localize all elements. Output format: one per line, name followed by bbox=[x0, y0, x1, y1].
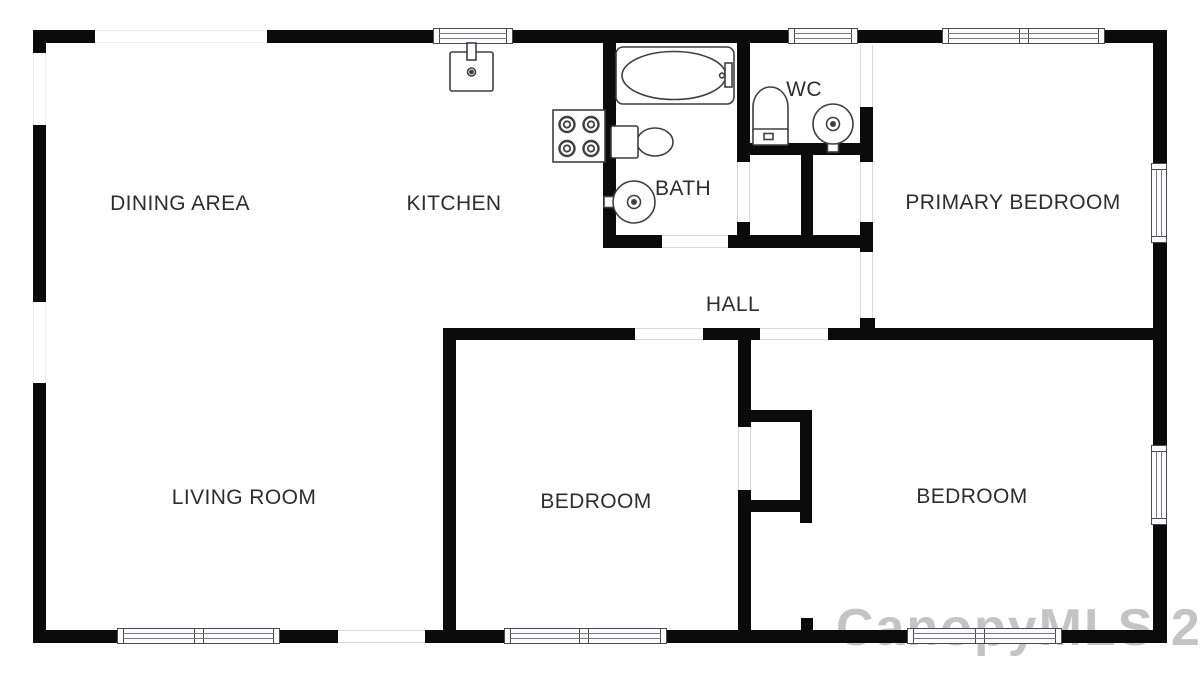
dining-window-opening bbox=[95, 30, 267, 43]
living-room-window bbox=[117, 628, 280, 644]
hall-closet-west-jamb bbox=[737, 222, 750, 248]
hall-closet-door-opening bbox=[737, 162, 750, 222]
room-label-dining-area-0: DINING AREA bbox=[110, 192, 250, 216]
floorplan-canvas: CanopyMLS 2023 DINING AREAKITCHENBATHWCP… bbox=[0, 0, 1200, 674]
closet-divider-wall bbox=[801, 155, 813, 248]
kitchen-window bbox=[433, 28, 513, 44]
living-room-entry-opening bbox=[338, 630, 425, 643]
hall-south-wall-mid bbox=[703, 328, 760, 340]
bath-door-opening bbox=[662, 235, 728, 248]
wc-toilet bbox=[753, 87, 788, 145]
room-label-kitchen-1: KITCHEN bbox=[407, 192, 502, 216]
room-label-bedroom-8: BEDROOM bbox=[916, 485, 1027, 509]
stove bbox=[553, 110, 605, 162]
room-label-living-room-6: LIVING ROOM bbox=[172, 486, 316, 510]
bedrooms-divider-north-wall bbox=[828, 328, 1153, 340]
dining-side-window-opening bbox=[33, 53, 46, 125]
wc-entry-opening bbox=[860, 45, 873, 107]
primary-bedroom-north-window bbox=[942, 28, 1105, 44]
room-label-bedroom-7: BEDROOM bbox=[540, 490, 651, 514]
bedroom-divider-wall-lower bbox=[738, 490, 751, 643]
living-side-window-opening bbox=[33, 302, 46, 383]
bedroom-closet-door-opening bbox=[738, 427, 751, 490]
bath-toilet bbox=[611, 126, 673, 158]
middle-bedroom-window bbox=[504, 628, 667, 644]
right-bedroom-door-opening bbox=[760, 328, 828, 340]
wc-south-wall bbox=[737, 143, 873, 155]
kitchen-sink bbox=[450, 43, 493, 91]
room-label-hall-5: HALL bbox=[706, 293, 760, 317]
right-bedroom-window bbox=[907, 628, 1062, 644]
primary-closet-door-opening bbox=[860, 162, 873, 222]
right-bedroom-east-window bbox=[1151, 445, 1167, 525]
middle-bedroom-west-wall bbox=[443, 328, 456, 643]
bathtub bbox=[616, 47, 734, 104]
room-label-primary-bedroom-4: PRIMARY BEDROOM bbox=[905, 191, 1120, 215]
middle-bedroom-door-opening bbox=[635, 328, 703, 340]
primary-west-wall-upper bbox=[860, 107, 873, 162]
room-label-wc-3: WC bbox=[786, 78, 822, 102]
bedroom-closet-south-wall bbox=[738, 500, 812, 512]
exterior-wall-right bbox=[1153, 30, 1167, 643]
bath-west-wall bbox=[603, 43, 616, 240]
bath-south-wall bbox=[603, 235, 662, 248]
hall-south-wall-left bbox=[443, 328, 635, 340]
wc-window bbox=[788, 28, 858, 44]
bottom-wall-jamb-stub bbox=[801, 618, 813, 631]
primary-bedroom-door-opening bbox=[860, 252, 873, 318]
primary-bedroom-east-window bbox=[1151, 163, 1167, 243]
room-label-bath-2: BATH bbox=[655, 177, 711, 201]
primary-west-wall-mid bbox=[860, 222, 873, 252]
